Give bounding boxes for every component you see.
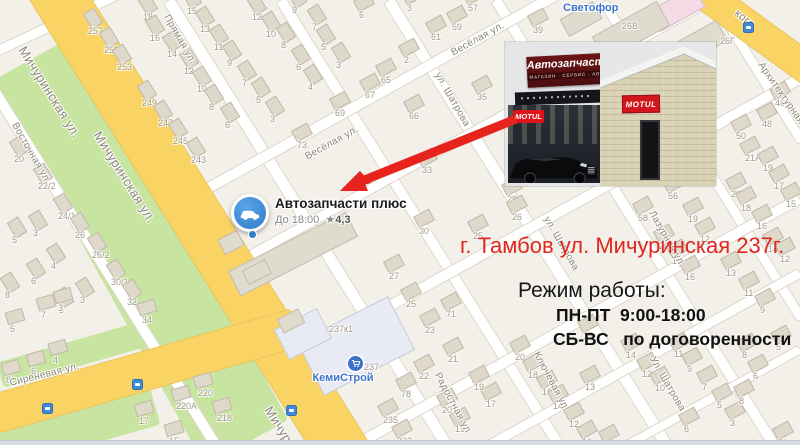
house-number-label: 15 — [786, 199, 796, 209]
house-number-label: 3 — [336, 60, 341, 70]
store-marker[interactable] — [231, 194, 269, 232]
schedule-title: Режим работы: — [518, 279, 666, 303]
rating-star-icon: ★ — [325, 214, 335, 226]
house-number-label: 35 — [477, 92, 487, 102]
street-name-label: ул. Шатрова — [432, 71, 472, 129]
house-number-label: 71 — [446, 309, 456, 319]
house-number-label: 14 — [626, 350, 636, 360]
house-number-label: 32 — [127, 297, 137, 307]
building — [164, 420, 185, 437]
marker-hours: До 18:00 — [275, 214, 319, 226]
house-number-label: 6 — [31, 276, 36, 286]
house-number-label: 56 — [668, 191, 678, 201]
house-number-label: 3 — [730, 418, 735, 428]
poi-label-svetofor[interactable]: Светофор — [563, 2, 618, 14]
house-number-label: 26/2 — [92, 250, 110, 260]
map-bottom-road — [0, 440, 800, 445]
address-text: г. Тамбов ул. Мичуринская 237г. — [460, 233, 784, 259]
house-number-label: 16 — [685, 272, 695, 282]
schedule-row-weekend: СБ-ВС по договоренности — [553, 329, 791, 350]
house-number-label: 23 — [425, 325, 435, 335]
house-number-label: 18 — [741, 203, 751, 213]
house-number-label: 3 — [80, 295, 85, 305]
roof — [600, 42, 716, 94]
house-number-label: 20 — [14, 154, 24, 164]
house-number-label: 6 — [359, 10, 364, 20]
poi-kemistroy[interactable]: КемиСтрой — [335, 356, 375, 384]
house-number-label: 9 — [227, 58, 232, 68]
overlay-photo: АвтозапчастиПЛЮС МАГАЗИН · СЕРВИС · АВТО… — [505, 42, 716, 186]
house-number-label: 9 — [292, 5, 297, 15]
house-number-label: 16 — [150, 33, 160, 43]
house-number-label: 243 — [191, 155, 206, 165]
house-number-label: 19 — [474, 382, 484, 392]
house-number-label: 16 — [757, 221, 767, 231]
house-number-label: 220 — [198, 388, 213, 398]
house-number-label: 26В — [622, 21, 638, 31]
house-number-label: 6 — [296, 62, 301, 72]
house-number-label: 26Г — [720, 36, 735, 46]
house-number-label: 7 — [41, 310, 46, 320]
house-number-label: 220А — [176, 401, 197, 411]
house-number-label: 50 — [736, 131, 746, 141]
house-number-label: 3 — [270, 114, 275, 124]
house-number-label: 4 — [308, 82, 313, 92]
house-number-label: 8 — [742, 350, 747, 360]
building — [5, 308, 26, 325]
brick-wall: MOTUL — [600, 42, 716, 186]
house-number-label: 34 — [142, 315, 152, 325]
house-number-label: 25 — [406, 299, 416, 309]
photo-info-strip — [515, 89, 603, 105]
transit-stop-icon[interactable] — [743, 22, 754, 33]
house-number-label: 10 — [266, 29, 276, 39]
house-number-label: 26 — [512, 212, 522, 222]
motul-poster: MOTUL — [508, 105, 600, 183]
house-number-label: 78 — [401, 389, 411, 399]
house-number-label: 17 — [486, 399, 496, 409]
house-number-label: 3 — [407, 3, 412, 13]
house-number-label: 8 — [209, 102, 214, 112]
house-number-label: 48 — [762, 119, 772, 129]
house-number-label: 5 — [717, 400, 722, 410]
house-number-label: 30 — [419, 226, 429, 236]
marker-label[interactable]: Автозапчасти плюс До 18:00 ★4,3 — [275, 196, 407, 226]
house-number-label: 5 — [256, 95, 261, 105]
building — [0, 271, 20, 293]
house-number-label: 69 — [335, 108, 345, 118]
house-number-label: 6 — [225, 120, 230, 130]
house-number-label: 4 — [51, 261, 56, 271]
house-number-label: 14 — [167, 49, 177, 59]
marker-title[interactable]: Автозапчасти плюс — [275, 196, 407, 211]
house-number-label: 21 — [448, 354, 458, 364]
house-number-label: 17 — [139, 416, 149, 426]
house-number-label: 39 — [533, 25, 543, 35]
screenshot-root: 2572552532492472452431816141210861513119… — [0, 0, 800, 445]
house-number-label: 59 — [452, 22, 462, 32]
house-number-label: 218 — [217, 413, 232, 423]
house-number-label: 4 — [53, 355, 58, 365]
car-photo — [508, 148, 600, 183]
shopping-cart-icon — [348, 356, 363, 371]
marker-subtitle: До 18:00 ★4,3 — [275, 213, 407, 226]
street-name-label: Ул. Шатрова — [647, 355, 687, 414]
house-number-label: 26 — [75, 230, 85, 240]
transit-stop-icon[interactable] — [286, 405, 297, 416]
house-number-label: 57 — [468, 3, 478, 13]
motul-wall-sign: MOTUL — [622, 95, 660, 114]
marker-anchor-dot — [248, 230, 257, 239]
house-number-label: 33 — [422, 165, 432, 175]
house-number-label: 65 — [381, 75, 391, 85]
marker-rating: 4,3 — [335, 214, 350, 226]
house-number-label: 67 — [365, 90, 375, 100]
house-number-label: 2 — [404, 55, 409, 65]
house-number-label: 13 — [726, 268, 736, 278]
house-number-label: 7 — [702, 382, 707, 392]
house-number-label: 73 — [297, 140, 307, 150]
house-number-label: 66 — [409, 111, 419, 121]
house-number-label: 9 — [760, 305, 765, 315]
house-number-label: 13 — [585, 382, 595, 392]
house-number-label: 3 — [58, 303, 63, 313]
transit-stop-icon[interactable] — [42, 403, 53, 414]
motul-poster-badge: MOTUL — [513, 110, 544, 123]
transit-stop-icon[interactable] — [132, 379, 143, 390]
car-icon — [239, 206, 261, 221]
house-number-label: 253 — [117, 62, 132, 72]
house-number-label: 6 — [684, 424, 689, 434]
house-number-label: 5 — [10, 324, 15, 334]
house-number-label: 61 — [431, 32, 441, 42]
poi-label-kemistro[interactable]: КемиСтрой — [311, 372, 375, 384]
house-number-label: 9 — [687, 364, 692, 374]
house-number-label: 7 — [242, 78, 247, 88]
house-number-label: 237к1 — [329, 324, 353, 334]
store-window — [640, 120, 660, 180]
house-number-label: 27 — [389, 271, 399, 281]
house-number-label: 8 — [739, 396, 744, 406]
house-number-label: 8 — [5, 290, 10, 300]
house-number-label: 5 — [12, 235, 17, 245]
house-number-label: 3 — [33, 228, 38, 238]
house-number-label: 5 — [321, 42, 326, 52]
schedule-row-weekdays: ПН-ПТ 9:00-18:00 — [556, 305, 706, 326]
house-number-label: 8 — [281, 40, 286, 50]
house-number-label: 6 — [753, 371, 758, 381]
house-number-label: 11 — [744, 288, 753, 298]
house-number-label: 22 — [419, 371, 429, 381]
